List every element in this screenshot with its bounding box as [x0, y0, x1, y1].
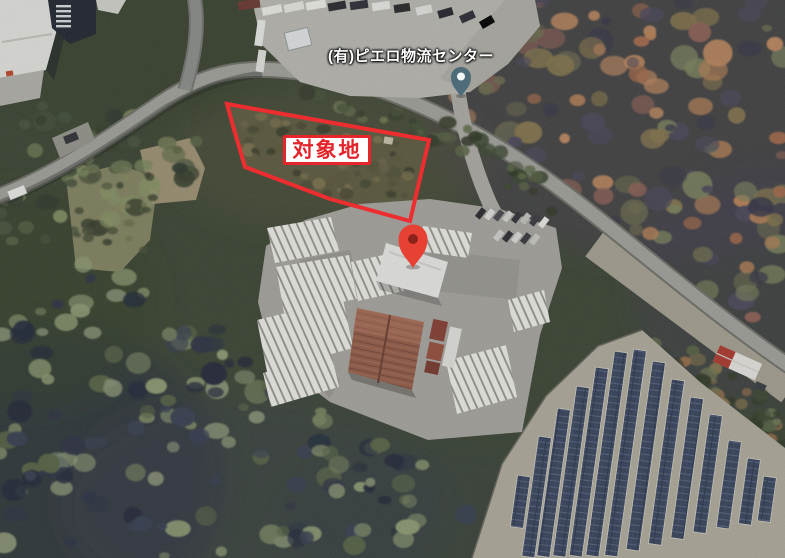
site-label: 対象地 [283, 135, 371, 165]
map-pin-icon[interactable] [399, 225, 428, 270]
annotation-overlay [0, 0, 785, 558]
satellite-map-canvas[interactable]: (有)ピエロ物流センター 対象地 [0, 0, 785, 558]
poi-marker-icon[interactable] [451, 67, 471, 98]
poi-label: (有)ピエロ物流センター [328, 45, 494, 66]
